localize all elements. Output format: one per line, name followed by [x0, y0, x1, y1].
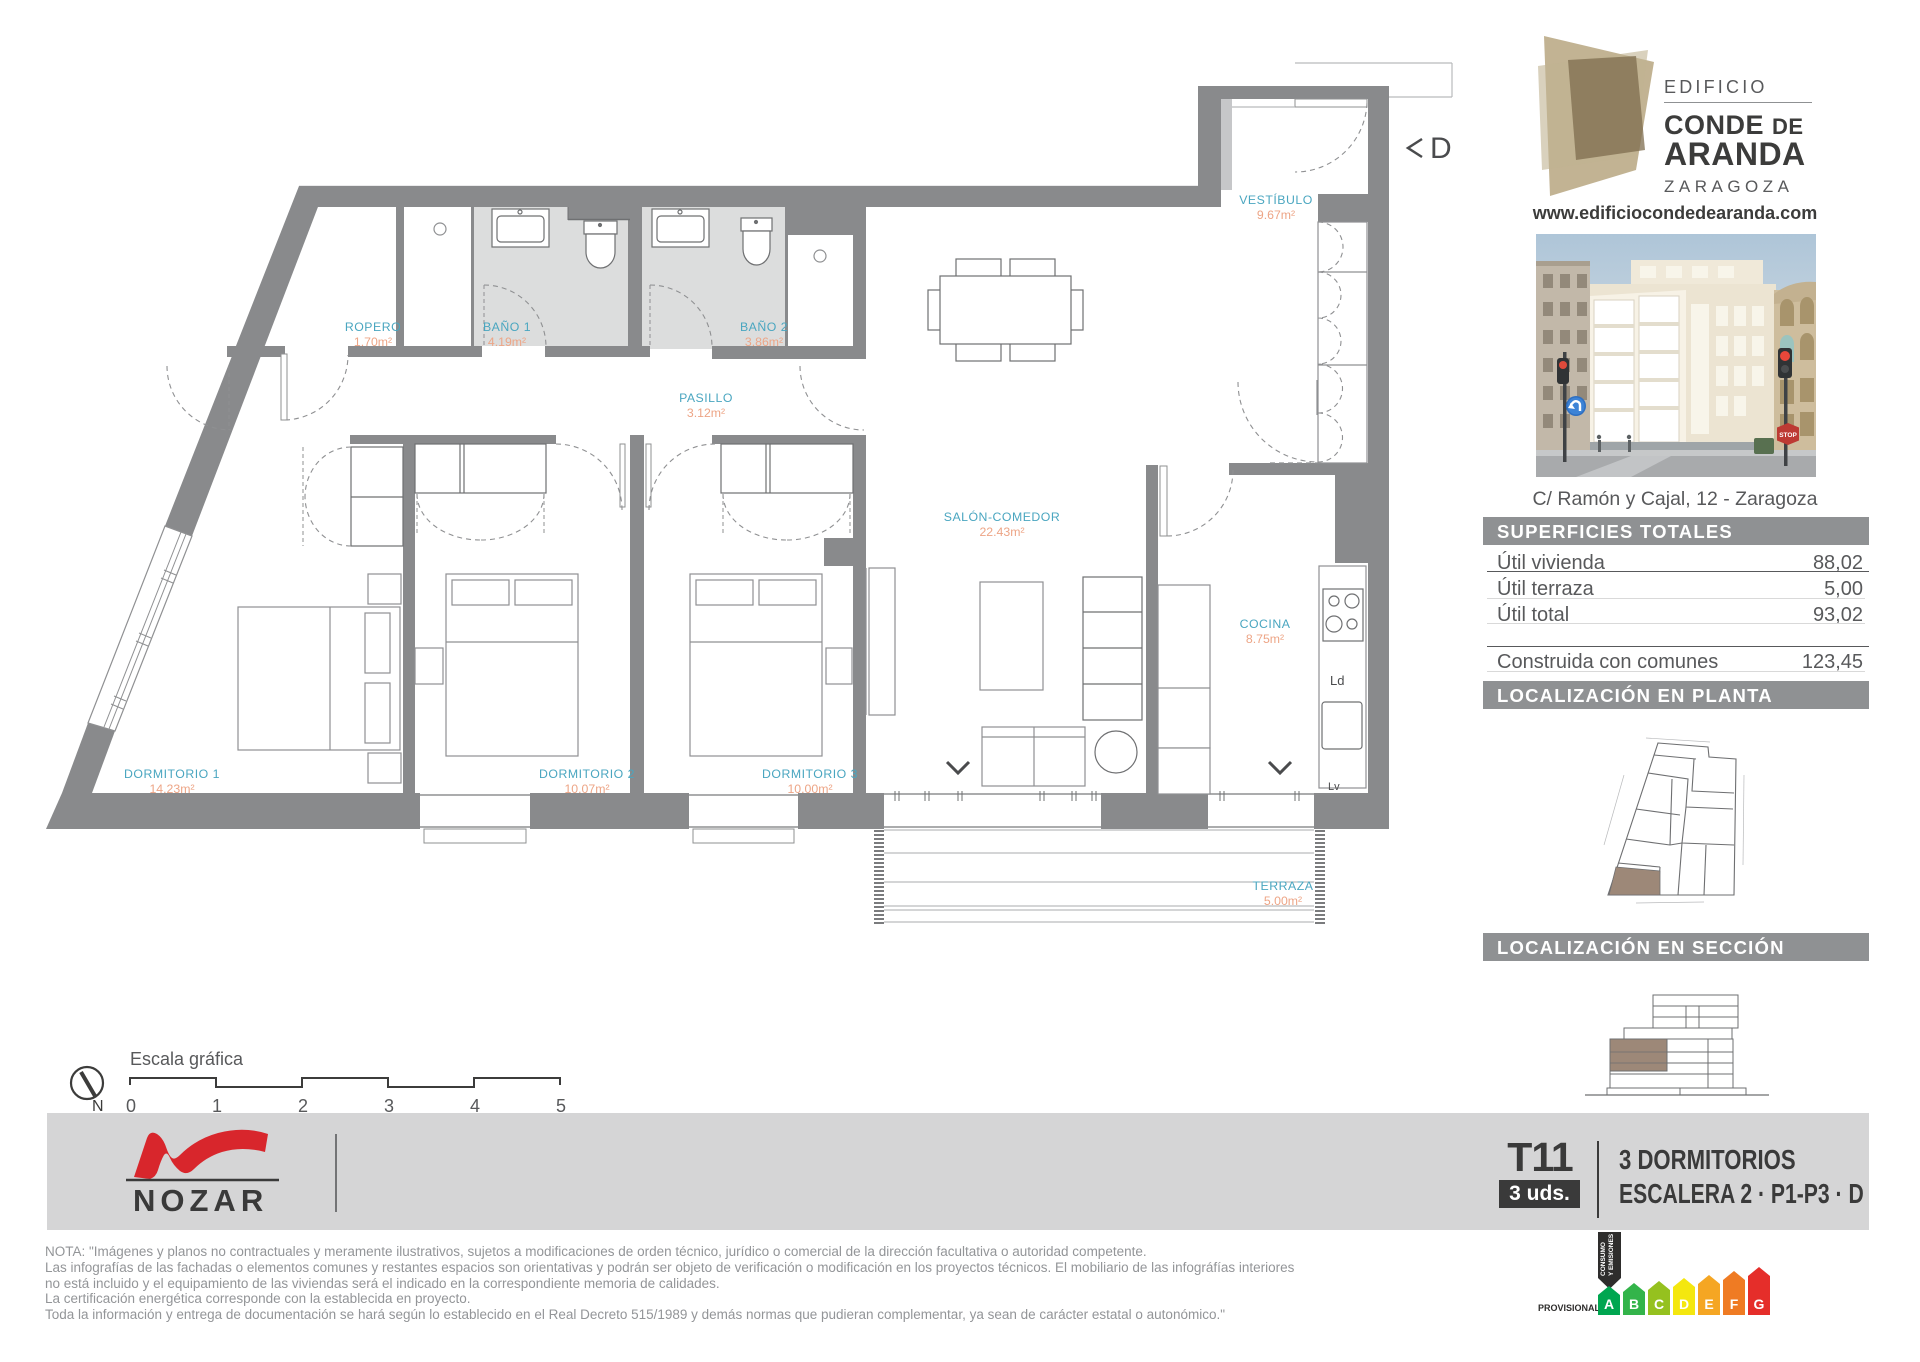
- svg-text:4.19m²: 4.19m²: [488, 335, 526, 349]
- svg-text:PASILLO: PASILLO: [679, 391, 733, 405]
- svg-text:PROVISIONAL: PROVISIONAL: [1538, 1303, 1601, 1313]
- svg-text:10.00m²: 10.00m²: [787, 782, 832, 796]
- svg-text:3.12m²: 3.12m²: [687, 406, 725, 420]
- svg-text:NOZAR: NOZAR: [133, 1183, 268, 1218]
- svg-text:C: C: [1654, 1296, 1664, 1312]
- svg-text:G: G: [1754, 1296, 1765, 1312]
- svg-text:F: F: [1730, 1296, 1739, 1312]
- svg-text:DORMITORIO 2: DORMITORIO 2: [539, 767, 635, 781]
- svg-text:8.75m²: 8.75m²: [1246, 632, 1284, 646]
- svg-text:TERRAZA: TERRAZA: [1253, 879, 1314, 893]
- svg-text:BAÑO 2: BAÑO 2: [740, 320, 788, 334]
- svg-text:10.07m²: 10.07m²: [564, 782, 609, 796]
- svg-text:VESTÍBULO: VESTÍBULO: [1239, 192, 1313, 207]
- svg-text:D: D: [1430, 132, 1452, 165]
- svg-text:Lv: Lv: [1328, 781, 1340, 793]
- svg-text:STOP: STOP: [1779, 432, 1797, 439]
- svg-text:Escala gráfica: Escala gráfica: [130, 1049, 244, 1069]
- svg-text:A: A: [1604, 1296, 1614, 1312]
- svg-text:Y EMISIONES: Y EMISIONES: [1608, 1233, 1615, 1276]
- svg-text:BAÑO 1: BAÑO 1: [483, 320, 531, 334]
- svg-text:COCINA: COCINA: [1240, 617, 1291, 631]
- svg-text:3.86m²: 3.86m²: [745, 335, 783, 349]
- svg-text:9.67m²: 9.67m²: [1257, 208, 1295, 222]
- svg-text:B: B: [1629, 1296, 1639, 1312]
- svg-text:14.23m²: 14.23m²: [149, 782, 194, 796]
- svg-text:ROPERO: ROPERO: [345, 320, 401, 334]
- svg-text:Ld: Ld: [1330, 673, 1344, 688]
- svg-text:SALÓN-COMEDOR: SALÓN-COMEDOR: [944, 509, 1061, 524]
- svg-text:5.00m²: 5.00m²: [1264, 894, 1302, 908]
- svg-text:CONSUMO: CONSUMO: [1600, 1242, 1607, 1276]
- svg-text:DORMITORIO 1: DORMITORIO 1: [124, 767, 220, 781]
- svg-text:DORMITORIO 3: DORMITORIO 3: [762, 767, 858, 781]
- svg-text:22.43m²: 22.43m²: [979, 525, 1024, 539]
- svg-text:1.70m²: 1.70m²: [354, 335, 392, 349]
- svg-text:D: D: [1679, 1296, 1689, 1312]
- svg-text:E: E: [1704, 1296, 1713, 1312]
